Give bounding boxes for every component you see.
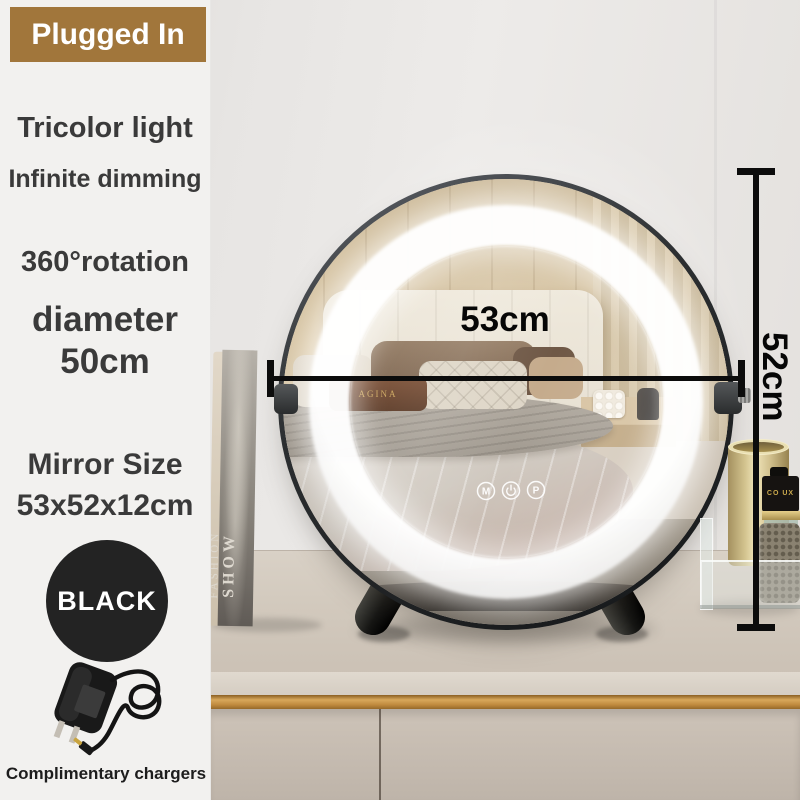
- width-dimension-cap-right: [738, 360, 745, 397]
- drawer-divider: [379, 709, 381, 800]
- power-icon: [503, 482, 520, 499]
- brightness-button: P: [528, 482, 545, 499]
- charger-plug: [72, 736, 95, 756]
- glass-tray-front: [700, 560, 800, 608]
- height-dimension-cap-bottom: [737, 624, 775, 631]
- feature-rotation: 360°rotation: [0, 246, 210, 279]
- height-dimension-cap-top: [737, 168, 775, 175]
- book-title-line2: SHOW: [220, 515, 239, 615]
- charger-caption: Complimentary chargers: [0, 764, 212, 784]
- touch-controls: M P: [474, 477, 550, 505]
- mirror-size-value: 53x52x12cm: [0, 485, 210, 526]
- product-image: FASHION SHOW AGINA CO UX: [0, 0, 800, 800]
- feature-mirror-size: Mirror Size 53x52x12cm: [0, 444, 210, 527]
- left-hinge: [274, 384, 298, 414]
- glass-tray-bottom-edge: [700, 605, 800, 609]
- mirror-size-label: Mirror Size: [0, 444, 210, 485]
- book-title: FASHION SHOW: [209, 515, 249, 616]
- feature-tricolor: Tricolor light: [0, 112, 210, 145]
- diameter-value: 50cm: [0, 341, 210, 383]
- width-dimension-cap-left: [267, 360, 274, 397]
- glass-glare: [283, 179, 729, 625]
- feature-diameter: diameter 50cm: [0, 299, 210, 383]
- width-dimension-label: 53cm: [430, 300, 580, 340]
- perfume-cap: CO UX: [762, 476, 799, 512]
- diameter-word: diameter: [0, 299, 210, 341]
- perfume-gold-band: [762, 511, 800, 520]
- dresser-drawers: [208, 709, 800, 800]
- fashion-book: FASHION SHOW: [209, 350, 258, 629]
- width-dimension-line: [272, 376, 742, 381]
- feature-dimming: Infinite dimming: [0, 165, 210, 194]
- gold-trim-strip: [208, 695, 800, 709]
- brightness-label: P: [533, 486, 540, 497]
- color-swatch-black: BLACK: [46, 540, 168, 662]
- mirror-glass: AGINA: [283, 179, 729, 625]
- mode-label: M: [482, 487, 490, 498]
- adapter-body: [46, 659, 120, 750]
- plugged-in-badge: Plugged In: [10, 7, 206, 62]
- charger-icon: [38, 658, 196, 762]
- mode-button: M: [478, 483, 495, 500]
- height-dimension-label: 52cm: [754, 332, 794, 422]
